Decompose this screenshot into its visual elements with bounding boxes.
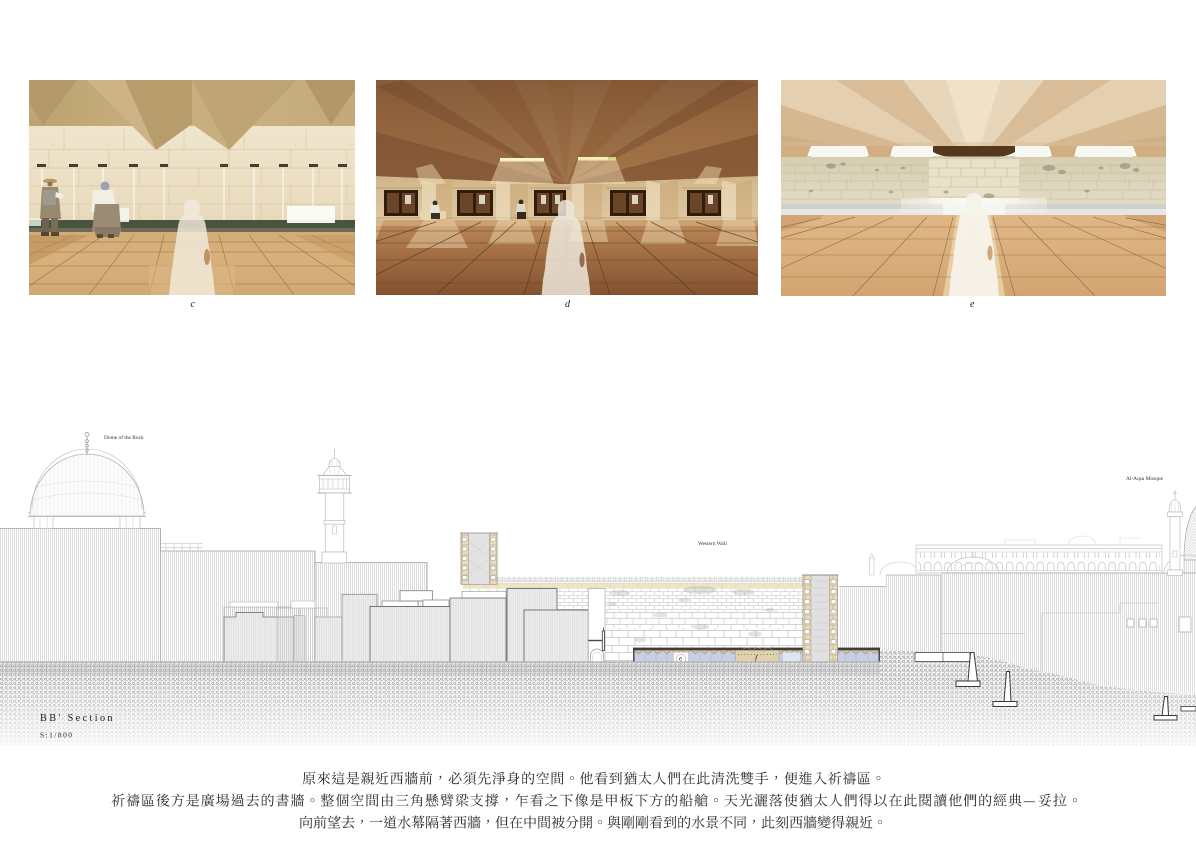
svg-text:BB' Section: BB' Section: [40, 713, 115, 724]
svg-text:S:1/800: S:1/800: [40, 731, 74, 740]
svg-text:Al-Aqsa Mosque: Al-Aqsa Mosque: [1126, 476, 1164, 482]
svg-text:Dome of the Rock: Dome of the Rock: [104, 434, 144, 441]
svg-text:Western Wall: Western Wall: [698, 541, 727, 547]
